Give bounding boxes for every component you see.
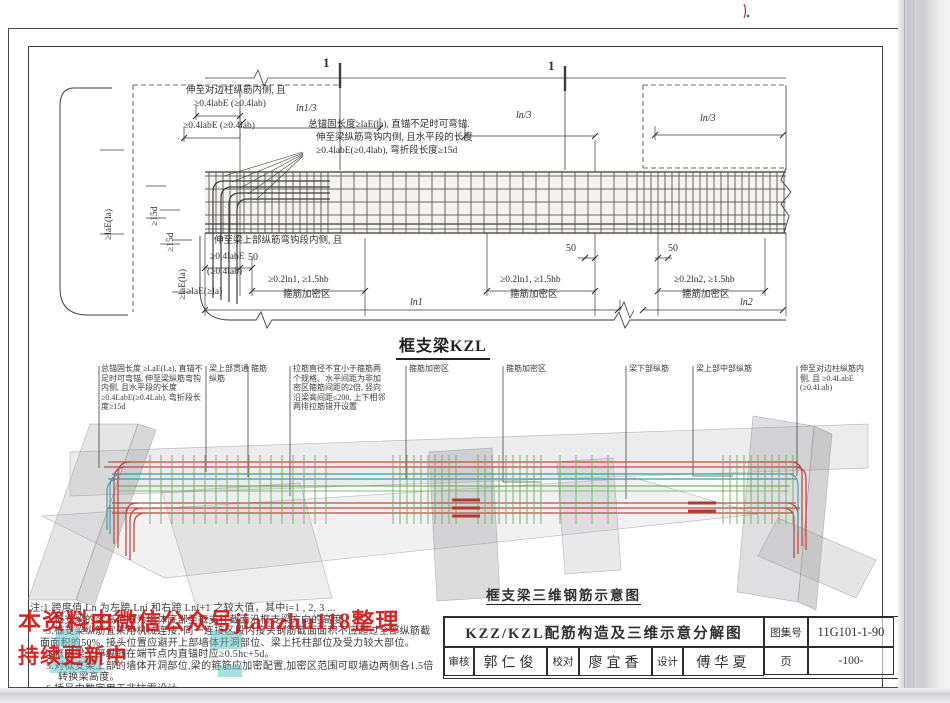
callout-tie-bars: 拉筋直径不宜小于箍筋两个规格、水平间距为非加密区箍筋间距的2倍, 竖向沿梁高间距… (293, 364, 388, 412)
anchor-note-line1: 总锚固长度≥laE(la), 直锚不足时可弯锚. (308, 120, 470, 131)
dense-dim-right: ≥0.2ln2, ≥1.5hb (674, 275, 735, 286)
book-edge-right-line2 (913, 0, 914, 703)
title-block-row2: 审核 郭仁俊 校对 廖宜香 设计 傅华夏 (444, 647, 764, 676)
dim-label-ge04-pair-1: ≥0.4labE (≥0.4lab) (194, 99, 266, 110)
book-edge-bottom (0, 688, 950, 703)
dim-ge-lae-left: ≥laE(la) (104, 209, 115, 240)
callout-top-through-bars: 梁上部贯通纵筋 (209, 364, 253, 383)
watermark-line2: 持续更新中 (18, 640, 128, 670)
book-edge-right-line1 (904, 0, 905, 703)
section-marker-1b: 1 (548, 59, 555, 74)
dense-dim-left: ≥0.2ln1, ≥1.5hb (268, 275, 329, 286)
dim-ln-3-b: ln/3 (700, 113, 716, 124)
dim-ge-lae-ge-la: ≥laE(≥la) (186, 287, 222, 298)
anchor-note-line3: ≥0.4labE(≥0.4lab), 弯折段长度≥15d (316, 146, 457, 157)
highlight-artifact-4 (218, 665, 242, 677)
dim-reach-beam-top: 伸至梁上部纵筋弯钩段内侧, 且 (214, 236, 342, 247)
check-label: 校对 (547, 647, 579, 676)
dim-ln2: ln2 (740, 297, 753, 308)
iso-caption: 框支梁三维钢筋示意图 (486, 588, 641, 605)
callout-top-middle-bars: 梁上部中部纵筋 (696, 364, 776, 374)
page-number: -100- (808, 647, 894, 675)
design-label: 设计 (652, 647, 683, 676)
title-block: KZZ/KZL配筋构造及三维示意分解图 图集号 11G101-1-90 页 -1… (443, 616, 899, 679)
dense-zone-mid: 箍筋加密区 (510, 290, 558, 301)
atlas-label: 图集号 (764, 617, 808, 647)
review-label: 审核 (444, 647, 474, 676)
scanned-atlas-page: 伸至对边柱纵筋内侧, 且 ≥0.4labE (≥0.4lab) ≥0.4labE… (0, 0, 950, 703)
dim-50-right: 50 (668, 243, 678, 254)
dim-label-ge04-pair-2: ≥0.4labE (≥0.4lab) (183, 121, 255, 132)
dense-zone-right: 箍筋加密区 (682, 290, 730, 301)
callout-reach-far-col: 伸至对边柱纵筋内侧, 且 ≥0.4LabE (≥0.4Lab) (800, 364, 872, 393)
atlas-number: 11G101-1-90 (808, 617, 894, 647)
dim-ge04labe: ≥0.4labE (210, 252, 245, 263)
sheet-title: KZZ/KZL配筋构造及三维示意分解图 (444, 617, 764, 647)
callout-dense-zone-2: 箍筋加密区 (506, 364, 566, 374)
checker-name: 廖宜香 (579, 647, 652, 676)
watermark-line1: 本资料由微信公众号jianzhu118整理 (18, 602, 399, 636)
top-detail-drawing (60, 63, 791, 328)
dim-ge15d-2: ≥15d (166, 233, 177, 252)
book-edge-right (898, 0, 950, 703)
reviewer-name: 郭仁俊 (474, 647, 547, 676)
designer-name: 傅华夏 (683, 647, 764, 676)
dim-ln1-3: ln1/3 (296, 103, 317, 114)
dim-ge15d-1: ≥15d (150, 207, 161, 226)
callout-anchor-length: 总锚固长度 ≥LaE(La), 直锚不足时可弯锚, 伸至梁纵筋弯钩内侧, 且水平… (101, 364, 207, 412)
dense-zone-left: 箍筋加密区 (283, 290, 331, 301)
dim-ln-3-a: ln/3 (516, 110, 532, 121)
dim-50-mid: 50 (566, 243, 576, 254)
dim-label-reach-far-col: 伸至对边柱纵筋内侧, 且 (186, 86, 286, 97)
dim-50-left: 50 (248, 252, 258, 263)
dim-ge04lab: (≥0.4lab) (207, 267, 242, 278)
callout-bottom-bars: 梁下部纵筋 (629, 364, 689, 374)
callout-dense-zone-1: 箍筋加密区 (409, 364, 469, 374)
pen-mark (744, 4, 749, 18)
dim-ln1: ln1 (410, 297, 423, 308)
callout-stirrup: 箍筋 (251, 364, 287, 374)
page-label: 页 (764, 647, 808, 675)
anchor-note-line2: 伸至梁纵筋弯钩内侧, 且水平段的长度 (316, 133, 473, 144)
section-marker-1a: 1 (323, 56, 330, 71)
drawing-title: 框支梁KZL (396, 332, 490, 360)
dense-dim-mid: ≥0.2ln1, ≥1.5hb (500, 275, 561, 286)
